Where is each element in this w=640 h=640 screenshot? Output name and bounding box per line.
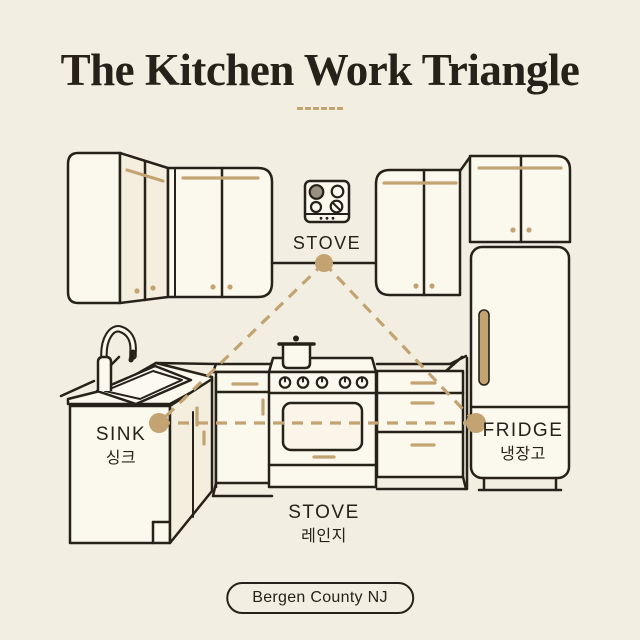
fridge-handle	[479, 310, 489, 385]
range-label: STOVE	[288, 502, 360, 523]
fridge-label-ko: 냉장고	[500, 445, 546, 463]
sink-vertex-dot	[149, 413, 169, 433]
upper-cabinets-left	[68, 153, 272, 303]
sink-cabinet-side	[170, 379, 212, 543]
cooktop-icon	[305, 181, 349, 222]
sink-label: SINK	[96, 424, 146, 445]
sink-label-ko: 싱크	[106, 449, 136, 467]
upper-cabinets-right	[376, 170, 460, 295]
poster: The Kitchen Work Triangle	[0, 0, 640, 640]
base-cabinet-left	[213, 364, 272, 496]
range-stove	[269, 336, 376, 488]
fridge-label: FRIDGE	[483, 420, 564, 441]
stove-vertex-dot	[315, 254, 333, 272]
location-badge: Bergen County NJ	[226, 582, 414, 614]
pot-icon	[279, 336, 314, 369]
kitchen-illustration: STOVE SINK 싱크 STOVE 레인지 FRIDGE 냉장고	[0, 0, 640, 640]
range-label-ko: 레인지	[301, 527, 347, 545]
stove-wall-label: STOVE	[293, 233, 361, 253]
fridge-upper-cabinet	[460, 156, 570, 242]
oven-window	[283, 403, 362, 450]
